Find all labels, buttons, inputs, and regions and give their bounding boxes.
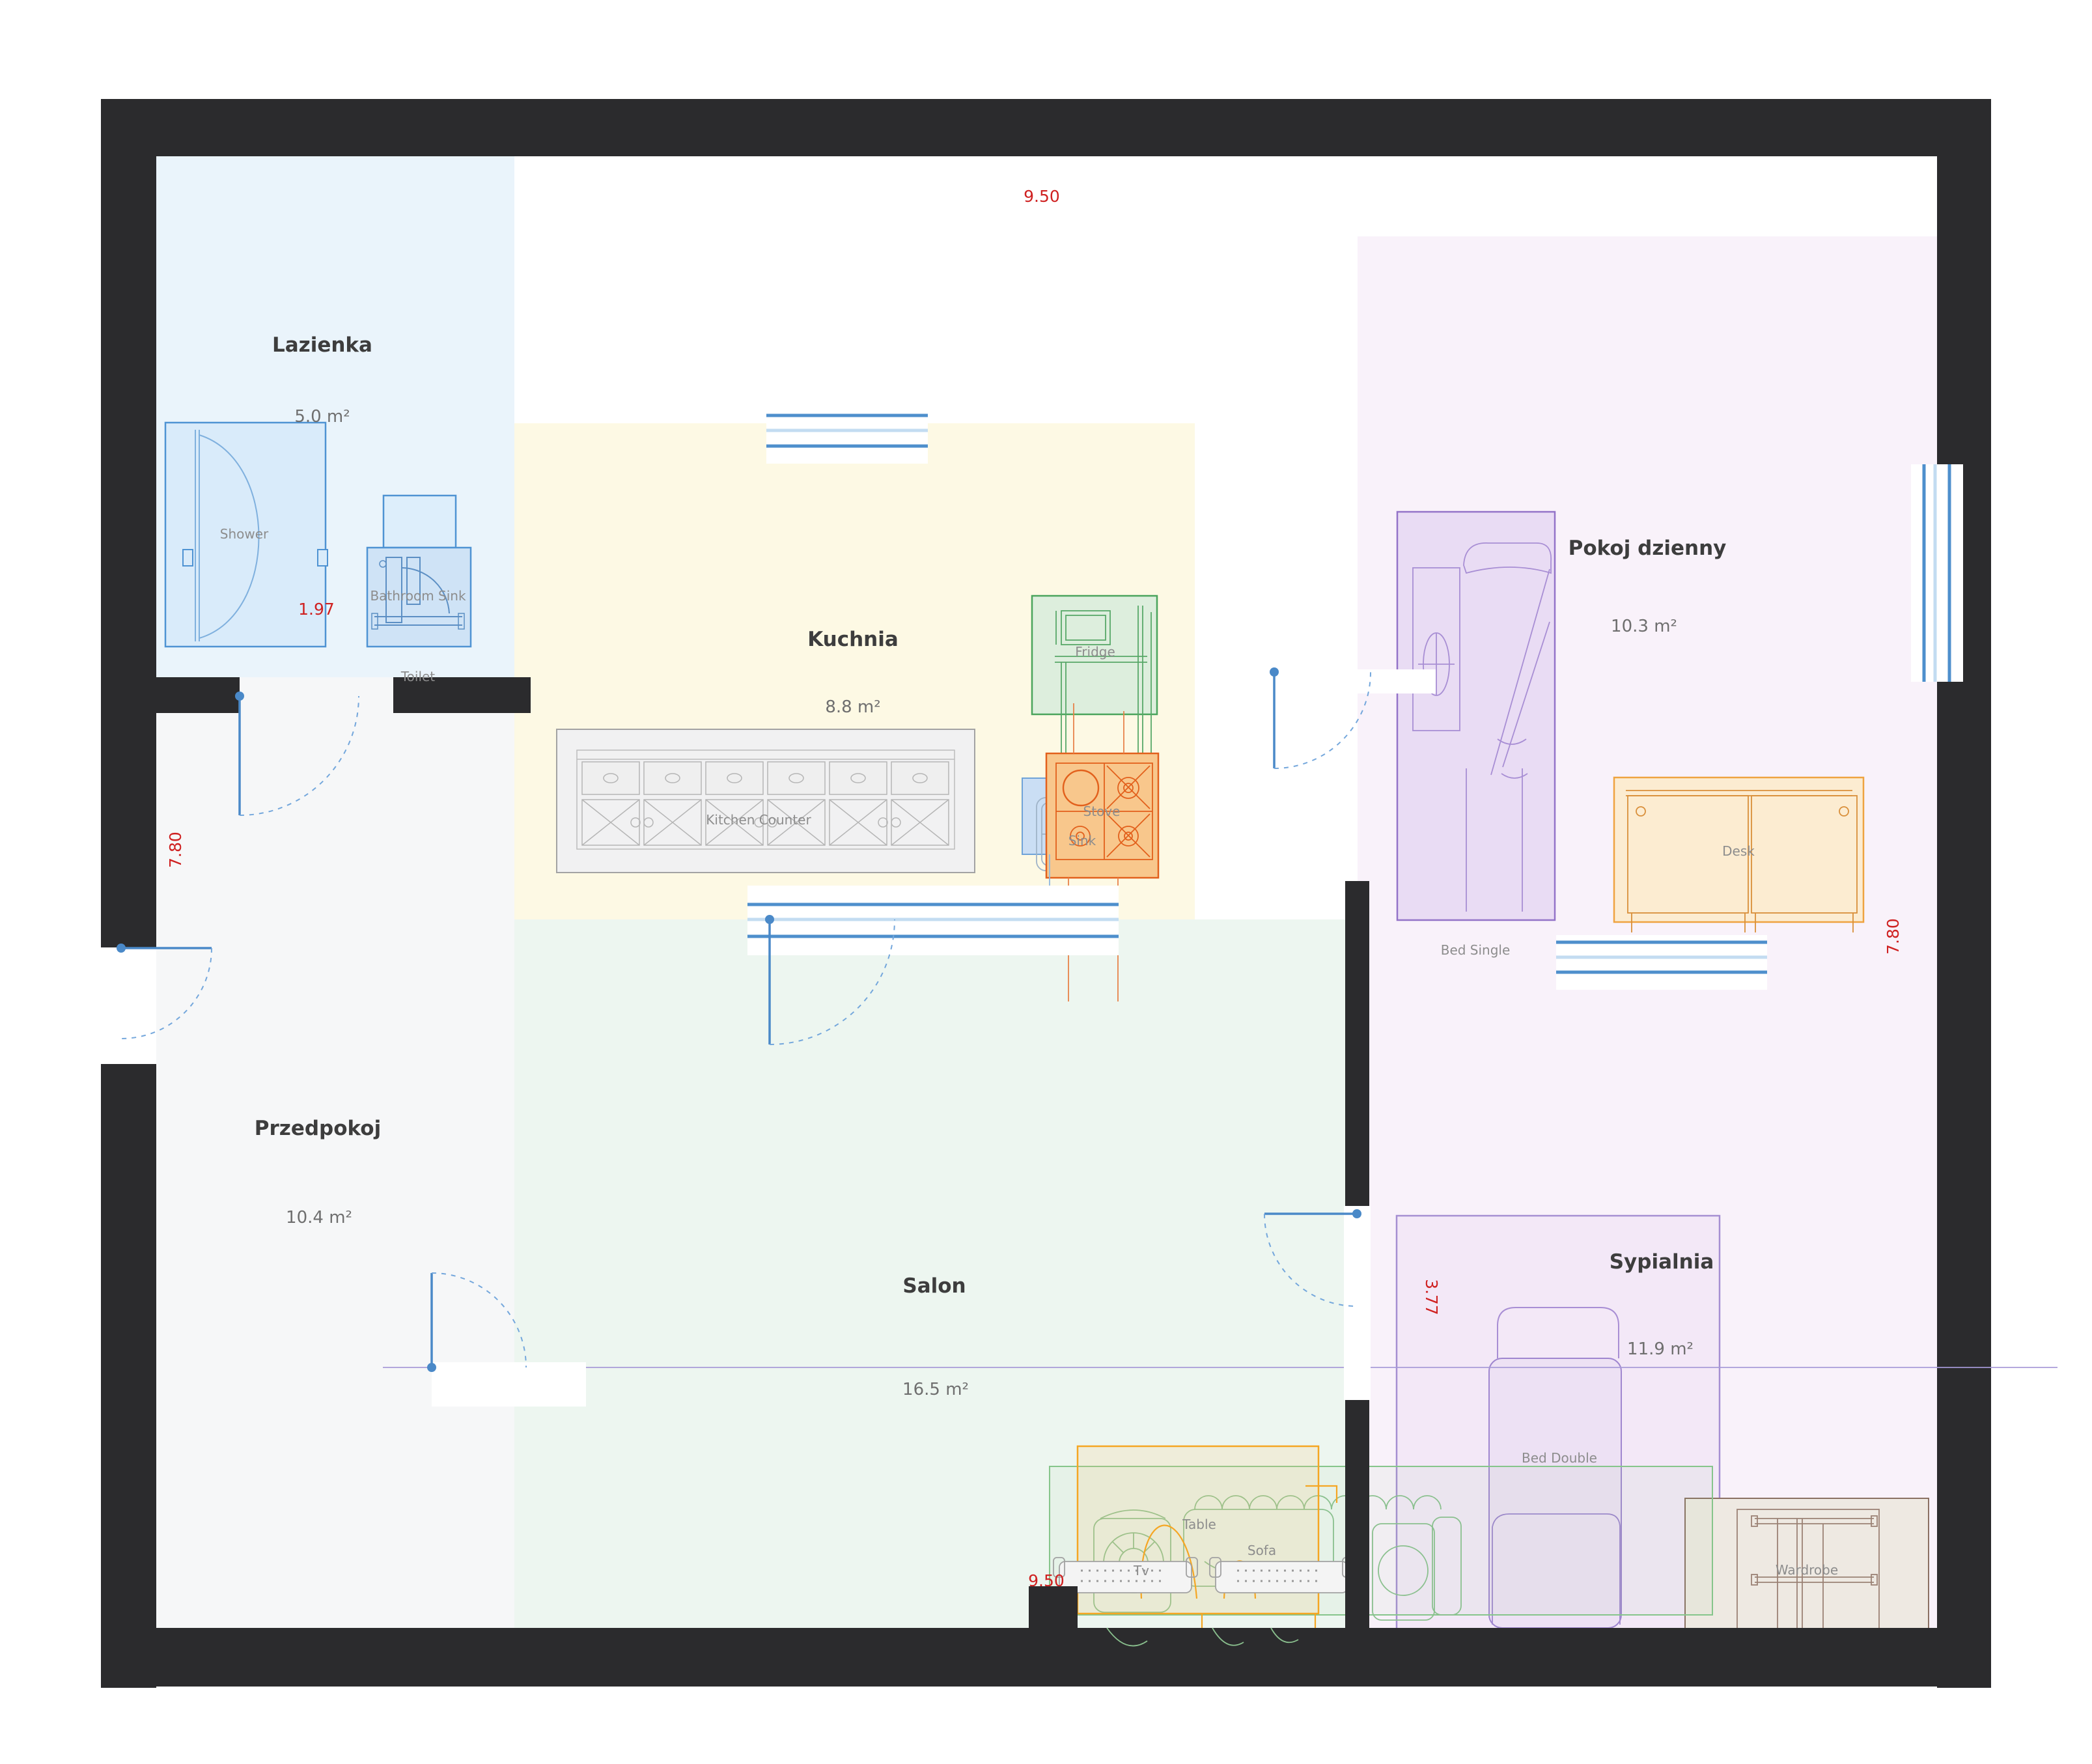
dim-bathroom: 1.97 xyxy=(298,600,335,619)
floorplan-svg: Lazienka 5.0 m² Kuchnia 8.8 m² Pokoj dzi… xyxy=(0,0,2092,1764)
wall-middle-lower xyxy=(1345,1400,1369,1628)
wall-left-lower xyxy=(101,1064,156,1688)
label-fridge: Fridge xyxy=(1075,644,1115,660)
wall-right xyxy=(1937,99,1991,1688)
bathroom-sink xyxy=(384,496,456,548)
room-area-salon: 16.5 m² xyxy=(902,1380,969,1399)
label-kitchen-counter: Kitchen Counter xyxy=(706,812,811,828)
door-gap-salon xyxy=(432,1362,586,1407)
label-bed-single: Bed Single xyxy=(1441,942,1511,958)
dim-bedroom: 3.77 xyxy=(1422,1279,1441,1315)
label-tv: Tv xyxy=(1133,1563,1149,1578)
window-right xyxy=(1911,464,1963,682)
room-area-kuchnia: 8.8 m² xyxy=(825,697,880,717)
window-kitchen-salon xyxy=(747,886,1119,955)
bed-single xyxy=(1397,512,1555,920)
wall-middle-upper xyxy=(1345,881,1369,1206)
wall-bathroom-left xyxy=(101,677,240,713)
label-desk: Desk xyxy=(1722,843,1755,859)
kitchen-counter xyxy=(557,729,975,873)
dim-top: 9.50 xyxy=(1024,187,1060,206)
room-label-salon: Salon xyxy=(902,1274,966,1298)
label-wardrobe: Wardrobe xyxy=(1776,1562,1838,1578)
label-bathroom-sink: Bathroom Sink xyxy=(370,588,466,604)
label-stove: Stove xyxy=(1083,804,1121,819)
window-pokoj-dzienny xyxy=(1556,935,1767,990)
dim-left: 7.80 xyxy=(166,832,185,868)
label-shower: Shower xyxy=(220,526,269,542)
label-bed-double: Bed Double xyxy=(1522,1450,1597,1466)
room-label-kuchnia: Kuchnia xyxy=(807,628,899,651)
floorplan-canvas: Lazienka 5.0 m² Kuchnia 8.8 m² Pokoj dzi… xyxy=(0,0,2092,1764)
room-area-przedpokoj: 10.4 m² xyxy=(286,1208,352,1227)
wall-bottom xyxy=(101,1628,1991,1687)
room-label-lazienka: Lazienka xyxy=(272,333,372,357)
label-sink: Sink xyxy=(1068,833,1096,848)
label-toilet: Toilet xyxy=(400,669,435,684)
room-area-lazienka: 5.0 m² xyxy=(294,407,350,427)
door-gap-pokoj xyxy=(1358,669,1436,693)
room-label-pokoj-dzienny: Pokoj dzienny xyxy=(1569,537,1727,560)
room-area-pokoj-dzienny: 10.3 m² xyxy=(1611,617,1677,636)
dim-right: 7.80 xyxy=(1884,918,1903,955)
room-label-sypialnia: Sypialnia xyxy=(1610,1250,1714,1274)
door-pokoj-dzienny xyxy=(1270,667,1371,768)
label-table: Table xyxy=(1182,1517,1216,1532)
door-gap-sypialnia xyxy=(1344,1206,1371,1400)
room-fill-przedpokoj xyxy=(156,677,514,1628)
dim-bottom: 9.50 xyxy=(1028,1571,1065,1590)
room-area-sypialnia: 11.9 m² xyxy=(1627,1339,1694,1359)
window-kitchen-top xyxy=(766,409,928,464)
wall-top xyxy=(101,99,1991,156)
wall-stub xyxy=(1029,1586,1078,1628)
wall-left-upper xyxy=(101,99,156,947)
room-label-przedpokoj: Przedpokoj xyxy=(255,1117,381,1140)
label-sofa: Sofa xyxy=(1248,1543,1276,1558)
